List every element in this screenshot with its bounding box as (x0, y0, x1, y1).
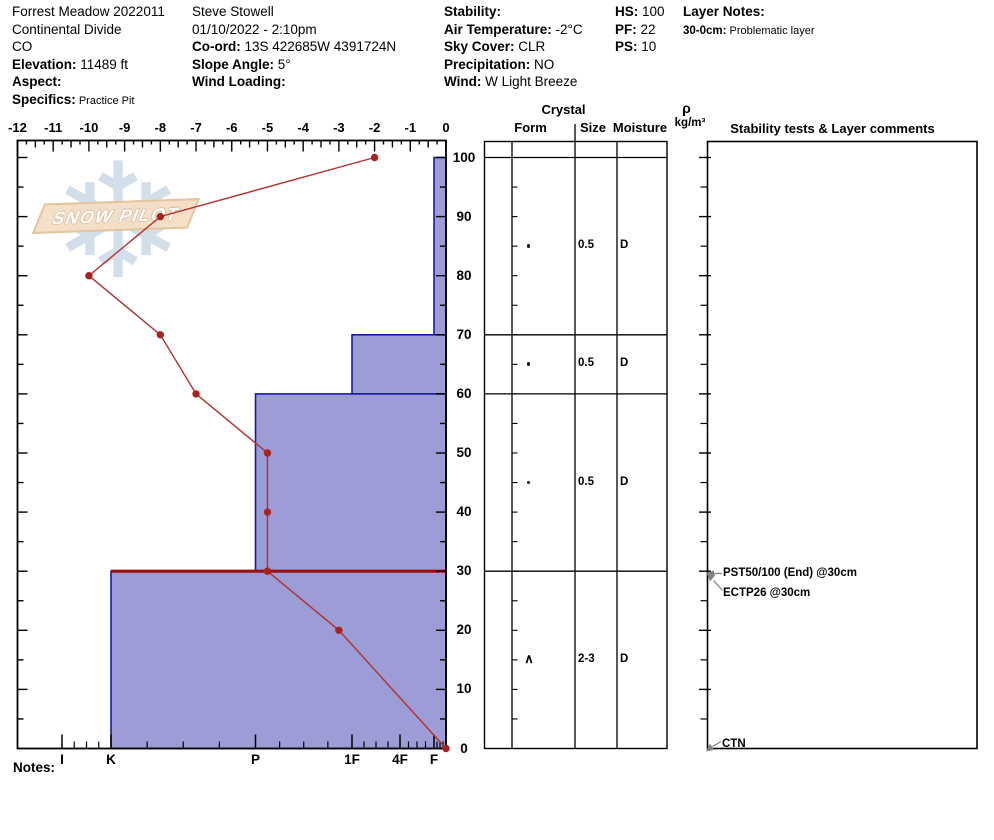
pit-info-conditions: Stability:Air Temperature: -2°CSky Cover… (444, 3, 583, 91)
hardness-axis-label: I (60, 752, 64, 767)
pit-info-line: Co-ord: 13S 422685W 4391724N (192, 38, 396, 56)
temperature-point (264, 449, 271, 456)
notes-label: Notes: (13, 760, 55, 775)
temp-axis-label: 0 (442, 120, 449, 135)
temp-axis-label: -9 (119, 120, 131, 135)
temperature-point (371, 154, 378, 161)
annotation-arrow (713, 742, 722, 747)
annotation-arrow (714, 581, 723, 591)
depth-axis-label: 10 (456, 681, 471, 696)
pit-info-line: Air Temperature: -2°C (444, 21, 583, 39)
pit-info-line: CO (12, 38, 165, 56)
temp-axis-label: -11 (44, 120, 62, 135)
pit-info-line: Wind Loading: (192, 73, 396, 91)
moisture-column-header: Moisture (613, 120, 667, 135)
crystal-column-group-header: Crystal (541, 102, 585, 117)
pit-info-observer: Steve Stowell01/10/2022 - 2:10pmCo-ord: … (192, 3, 396, 91)
temp-axis-label: -10 (80, 120, 99, 135)
temp-axis-label: -3 (333, 120, 345, 135)
grain-form-symbol (527, 481, 531, 485)
temp-axis-label: -6 (226, 120, 238, 135)
depth-axis-label: 90 (456, 209, 471, 224)
stability-box-border (708, 142, 978, 749)
depth-axis-label: 60 (456, 386, 471, 401)
grain-size: 0.5 (578, 357, 594, 369)
temperature-point (192, 390, 199, 397)
depth-axis-label: 40 (456, 504, 471, 519)
depth-axis-label: 20 (456, 622, 471, 637)
pit-info-line: Stability: (444, 3, 583, 21)
density-column-header: ρ (682, 100, 691, 116)
pit-info-line: Precipitation: NO (444, 56, 583, 74)
grain-size: 2-3 (578, 653, 595, 665)
temperature-point (264, 568, 271, 575)
form-column-header: Form (514, 120, 547, 135)
depth-axis-label: 100 (453, 150, 476, 165)
hardness-axis-label: K (106, 752, 116, 767)
stability-test-label: ECTP26 @30cm (723, 587, 810, 599)
pit-info-line: Layer Notes: (683, 3, 815, 21)
temp-axis-label: -4 (297, 120, 309, 135)
grain-moisture: D (620, 653, 628, 665)
temperature-point (157, 213, 164, 220)
hardness-axis-label: 4F (392, 752, 408, 767)
pit-info-line: Continental Divide (12, 21, 165, 39)
pit-info-line: Aspect: (12, 73, 165, 91)
temp-axis-label: -2 (369, 120, 381, 135)
pit-info-location: Forrest Meadow 2022011Continental Divide… (12, 3, 165, 110)
pit-info-line: Elevation: 11489 ft (12, 56, 165, 74)
pit-info-line: Slope Angle: 5° (192, 56, 396, 74)
depth-axis-label: 50 (456, 445, 471, 460)
snow-layer (111, 571, 446, 748)
pit-info-line: Wind: W Light Breeze (444, 73, 583, 91)
temperature-point (264, 508, 271, 515)
grain-form-symbol (527, 244, 531, 248)
temp-axis-label: -1 (405, 120, 417, 135)
hardness-axis-label: P (251, 752, 260, 767)
temp-axis-label: -5 (262, 120, 274, 135)
temperature-point (335, 627, 342, 634)
snow-layer (256, 394, 447, 571)
depth-axis-label: 30 (456, 563, 471, 578)
grain-moisture: D (620, 357, 628, 369)
density-units-label: kg/m³ (675, 117, 706, 129)
pit-info-line: PF: 22 (615, 21, 665, 39)
snow-layer (352, 335, 446, 394)
size-column-header: Size (580, 120, 606, 135)
temp-axis-label: -7 (190, 120, 202, 135)
pit-info-line: Sky Cover: CLR (444, 38, 583, 56)
stability-test-label: CTN (722, 738, 746, 750)
pit-info-layer-notes: Layer Notes:30-0cm: Problematic layer (683, 3, 815, 40)
depth-axis-label: 80 (456, 268, 471, 283)
temp-axis-label: -8 (155, 120, 167, 135)
pit-info-line: PS: 10 (615, 38, 665, 56)
grain-moisture: D (620, 239, 628, 251)
grain-form-symbol: ∧ (524, 651, 534, 667)
grain-form-symbol (527, 362, 531, 366)
pit-info-line: 30-0cm: Problematic layer (683, 21, 815, 41)
grain-moisture: D (620, 476, 628, 488)
stability-test-label: PST50/100 (End) @30cm (723, 567, 857, 579)
pit-info-line: Specifics: Practice Pit (12, 91, 165, 111)
temp-axis-label: -12 (8, 120, 27, 135)
grain-size: 0.5 (578, 476, 594, 488)
pit-info-line: Forrest Meadow 2022011 (12, 3, 165, 21)
hardness-axis-label: 1F (344, 752, 360, 767)
snowpilot-profile-page: ❄ SNOW PILOT Crystal Form Size Moisture … (0, 0, 994, 840)
hardness-axis-label: F (430, 752, 438, 767)
grain-size: 0.5 (578, 239, 594, 251)
temperature-point (442, 745, 449, 752)
depth-axis-label: 0 (460, 741, 468, 756)
pit-info-measurements: HS: 100PF: 22PS: 10 (615, 3, 665, 56)
temperature-point (157, 331, 164, 338)
temperature-point (85, 272, 92, 279)
pit-info-line: 01/10/2022 - 2:10pm (192, 21, 396, 39)
depth-axis-label: 70 (456, 327, 471, 342)
pit-info-line: HS: 100 (615, 3, 665, 21)
pit-info-line: Steve Stowell (192, 3, 396, 21)
stability-tests-header: Stability tests & Layer comments (730, 121, 934, 136)
